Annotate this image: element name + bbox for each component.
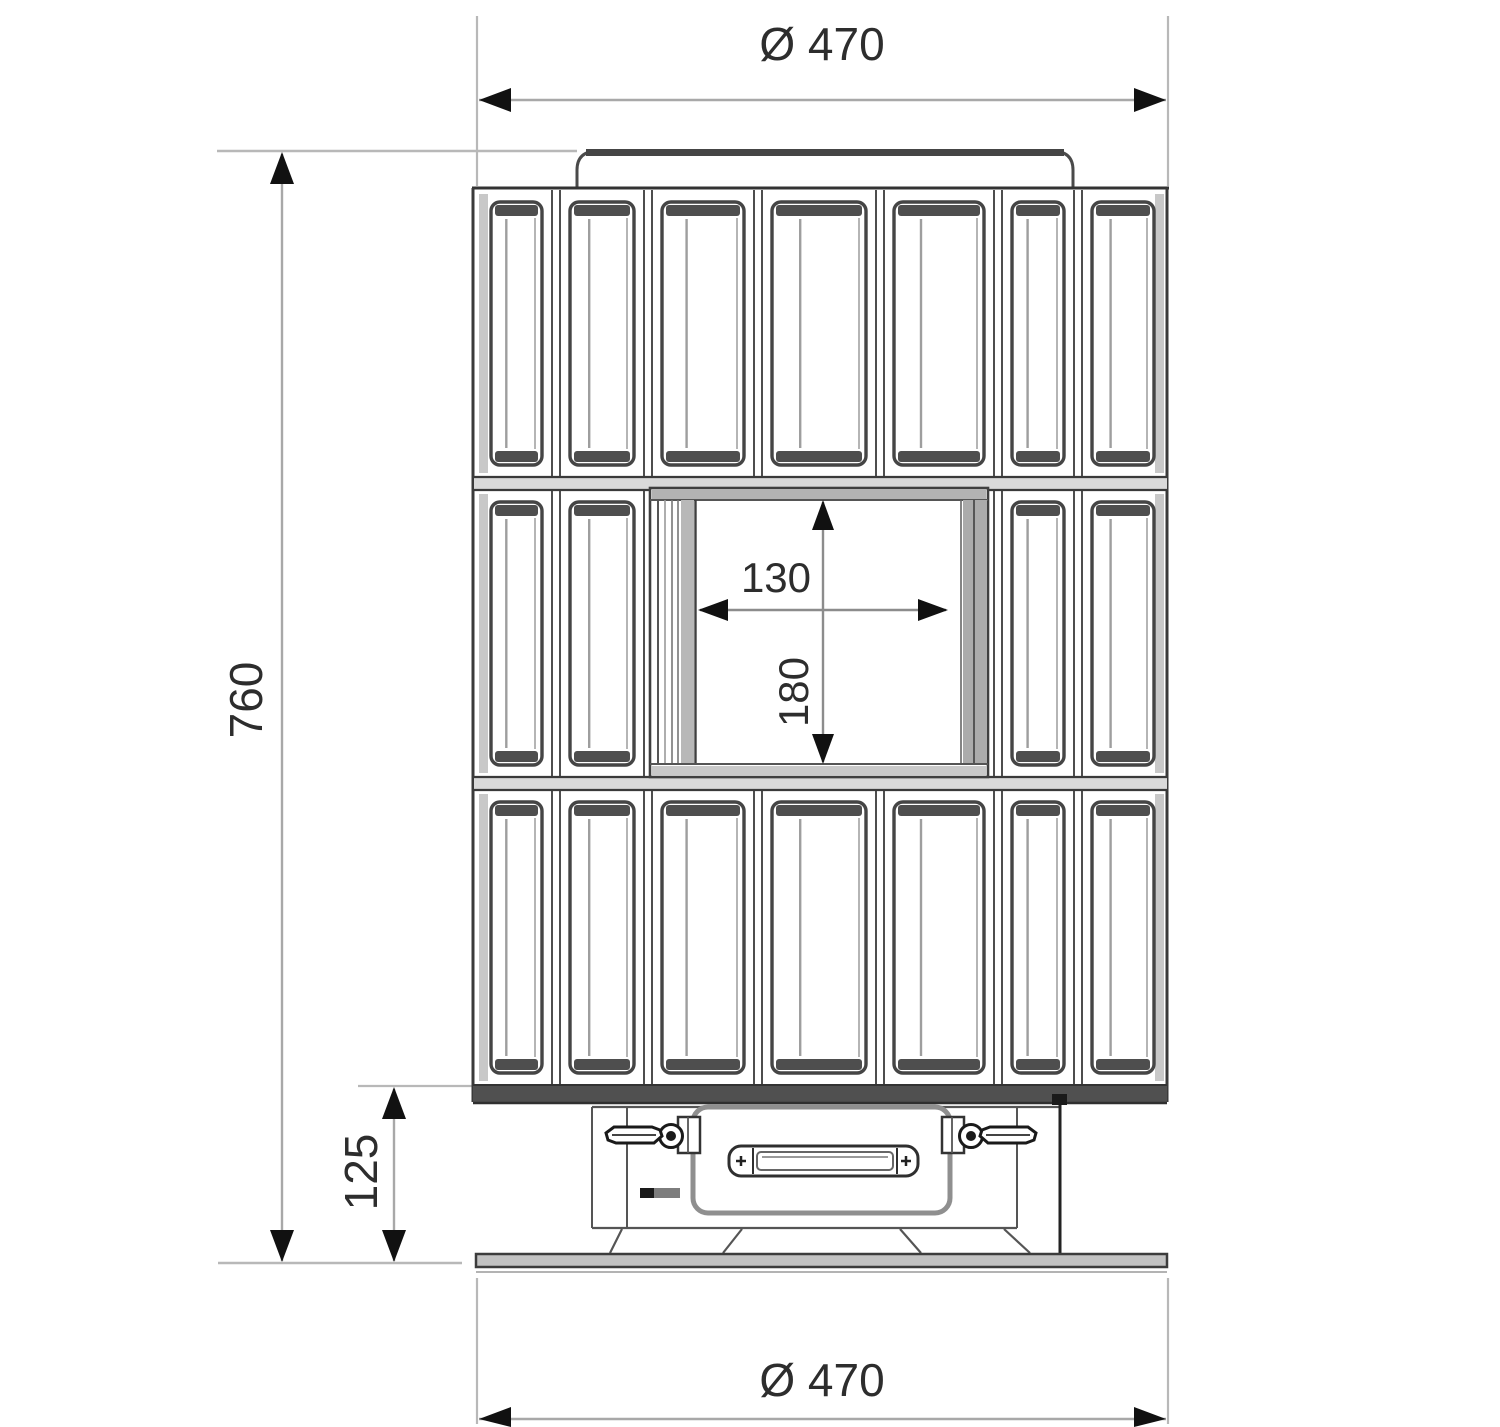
tile-row	[479, 190, 1164, 477]
door-latch-lines	[961, 500, 987, 764]
stove-tile	[772, 202, 866, 465]
stove-tile	[570, 802, 634, 1073]
tile-row	[479, 790, 1164, 1085]
stove-top-cap	[577, 151, 1073, 188]
stove-tile	[1012, 202, 1064, 465]
bottom-diameter-label: Ø 470	[759, 1354, 884, 1406]
row-separator-band	[473, 777, 1167, 790]
cap-outline	[577, 151, 1073, 188]
stove-tile	[662, 802, 744, 1073]
label-plate	[640, 1188, 680, 1198]
stove-tile	[570, 502, 634, 765]
opening-height-label: 180	[770, 657, 817, 727]
base-height-label: 125	[335, 1134, 387, 1211]
stove-tile	[491, 502, 542, 765]
stove-tile	[1092, 502, 1154, 765]
door-top-band	[652, 489, 986, 500]
top-diameter-label: Ø 470	[759, 18, 884, 70]
stove-tile	[894, 202, 984, 465]
stove-tile	[1012, 802, 1064, 1073]
stove-tile	[662, 202, 744, 465]
stove-technical-drawing: Ø 470 760 125 Ø 470	[0, 0, 1500, 1427]
door-frame	[650, 488, 988, 777]
stove-tile	[570, 202, 634, 465]
door-bottom-band	[652, 766, 986, 775]
ash-door-handle	[729, 1146, 918, 1176]
stove-tile	[491, 802, 542, 1073]
stove-tile	[772, 802, 866, 1073]
opening-width-label: 130	[741, 554, 811, 601]
stove-tile	[894, 802, 984, 1073]
stove-tile	[1092, 802, 1154, 1073]
stove-tile	[1092, 202, 1154, 465]
stove-tile	[491, 202, 542, 465]
overall-height-label: 760	[220, 662, 272, 739]
stove-tile	[1012, 502, 1064, 765]
stove-fire-door: 130 180	[650, 488, 988, 777]
damper-tab	[1052, 1094, 1067, 1105]
